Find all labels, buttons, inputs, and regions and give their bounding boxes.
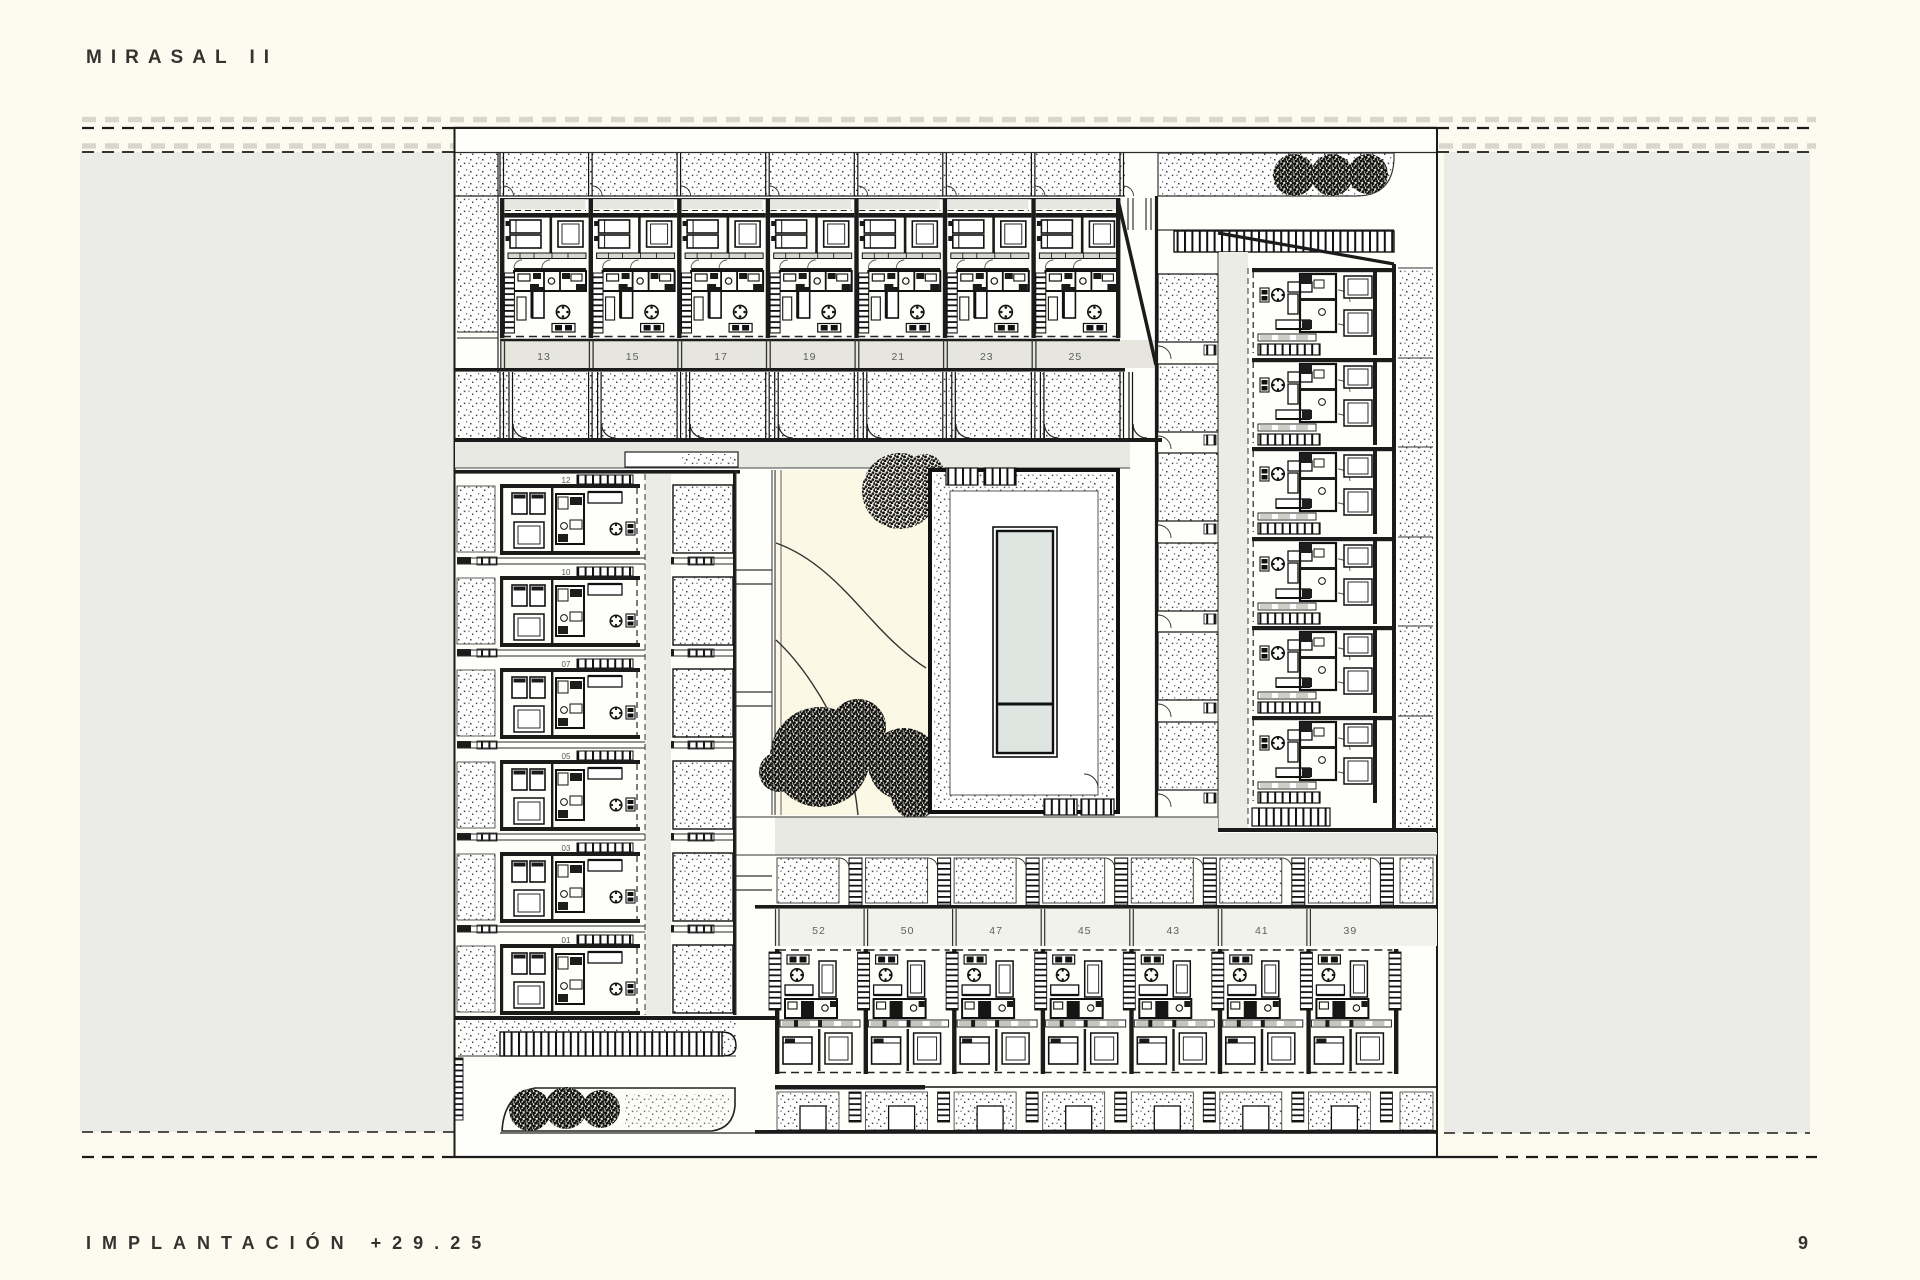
svg-text:45: 45 — [1078, 925, 1092, 937]
svg-text:52: 52 — [812, 925, 826, 937]
svg-text:17: 17 — [714, 351, 728, 363]
svg-text:25: 25 — [1069, 351, 1083, 363]
svg-text:39: 39 — [1344, 925, 1358, 937]
svg-text:19: 19 — [803, 351, 817, 363]
svg-text:50: 50 — [901, 925, 915, 937]
svg-text:41: 41 — [1255, 925, 1269, 937]
svg-text:03: 03 — [562, 844, 571, 853]
svg-text:MIRASAL II: MIRASAL II — [86, 47, 278, 68]
svg-text:15: 15 — [626, 351, 640, 363]
svg-text:05: 05 — [562, 752, 571, 761]
svg-text:01: 01 — [562, 936, 571, 945]
svg-text:12: 12 — [562, 476, 571, 485]
svg-text:13: 13 — [537, 351, 551, 363]
svg-text:43: 43 — [1166, 925, 1180, 937]
svg-text:10: 10 — [562, 568, 571, 577]
svg-text:47: 47 — [989, 925, 1003, 937]
svg-text:IMPLANTACIÓN +29.25: IMPLANTACIÓN +29.25 — [86, 1232, 492, 1253]
svg-text:07: 07 — [562, 660, 571, 669]
svg-text:21: 21 — [891, 351, 905, 363]
svg-text:9: 9 — [1798, 1233, 1808, 1253]
svg-text:23: 23 — [980, 351, 994, 363]
